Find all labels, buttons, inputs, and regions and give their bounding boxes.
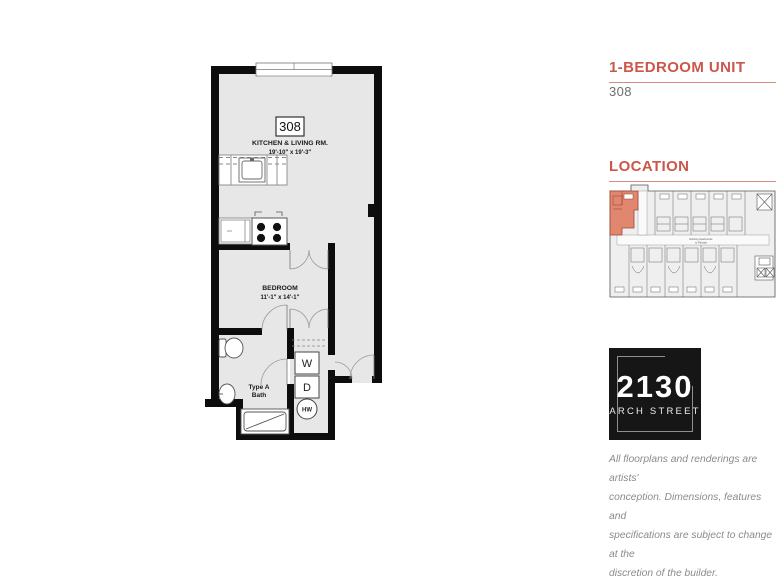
living-room-dims: 19'-10" x 19'-3" [269,150,312,156]
highlighted-unit [610,191,638,235]
bath-label-line1: Type A [249,384,270,391]
disclaimer-line: specifications are subject to change at … [609,526,776,564]
elevator-core-icon [755,256,774,280]
window-icon [256,63,332,76]
fridge-icon [221,220,250,242]
water-heater-label: HW [302,408,312,414]
unit-number-subtitle: 308 [609,84,632,99]
toilet-icon [219,338,243,358]
bath-sink-icon [219,384,235,404]
corridor-note-line2: to Remain [695,241,707,245]
bath-label-line2: Bath [252,392,266,399]
location-map-drawing: Existing Apartments to Remain [609,184,776,300]
living-room-label: KITCHEN & LIVING RM. [252,140,328,147]
brand-logo: 2130 ARCH STREET [609,348,701,440]
location-heading: LOCATION [609,158,776,182]
location-map: Existing Apartments to Remain [609,184,776,300]
unit-type-heading: 1-BEDROOM UNIT [609,59,776,83]
floorplan-drawing: W D HW 308 KITCHEN & LIVING RM. 19'-10" … [200,55,405,455]
unit-number-box: 308 [276,117,304,136]
disclaimer-line: conception. Dimensions, features and [609,488,776,526]
disclaimer-line: discretion of the builder. [609,564,776,583]
washer-label: W [302,358,313,370]
kitchen-sink-icon [239,158,265,182]
logo-street: ARCH STREET [609,406,700,417]
bathtub-icon [241,409,289,434]
disclaimer-line: All floorplans and renderings are artist… [609,450,776,488]
floorplan: W D HW 308 KITCHEN & LIVING RM. 19'-10" … [200,55,405,455]
bedroom-label: BEDROOM [262,285,298,292]
laundry-stack: W D HW [295,352,319,419]
dryer-label: D [303,382,311,394]
stair-core-icon [757,194,772,210]
unit-number-label: 308 [279,119,301,134]
corridor-note-line1: Existing Apartments [690,237,714,241]
logo-number: 2130 [617,371,694,402]
bedroom-dims: 11'-1" x 14'-1" [261,295,300,301]
